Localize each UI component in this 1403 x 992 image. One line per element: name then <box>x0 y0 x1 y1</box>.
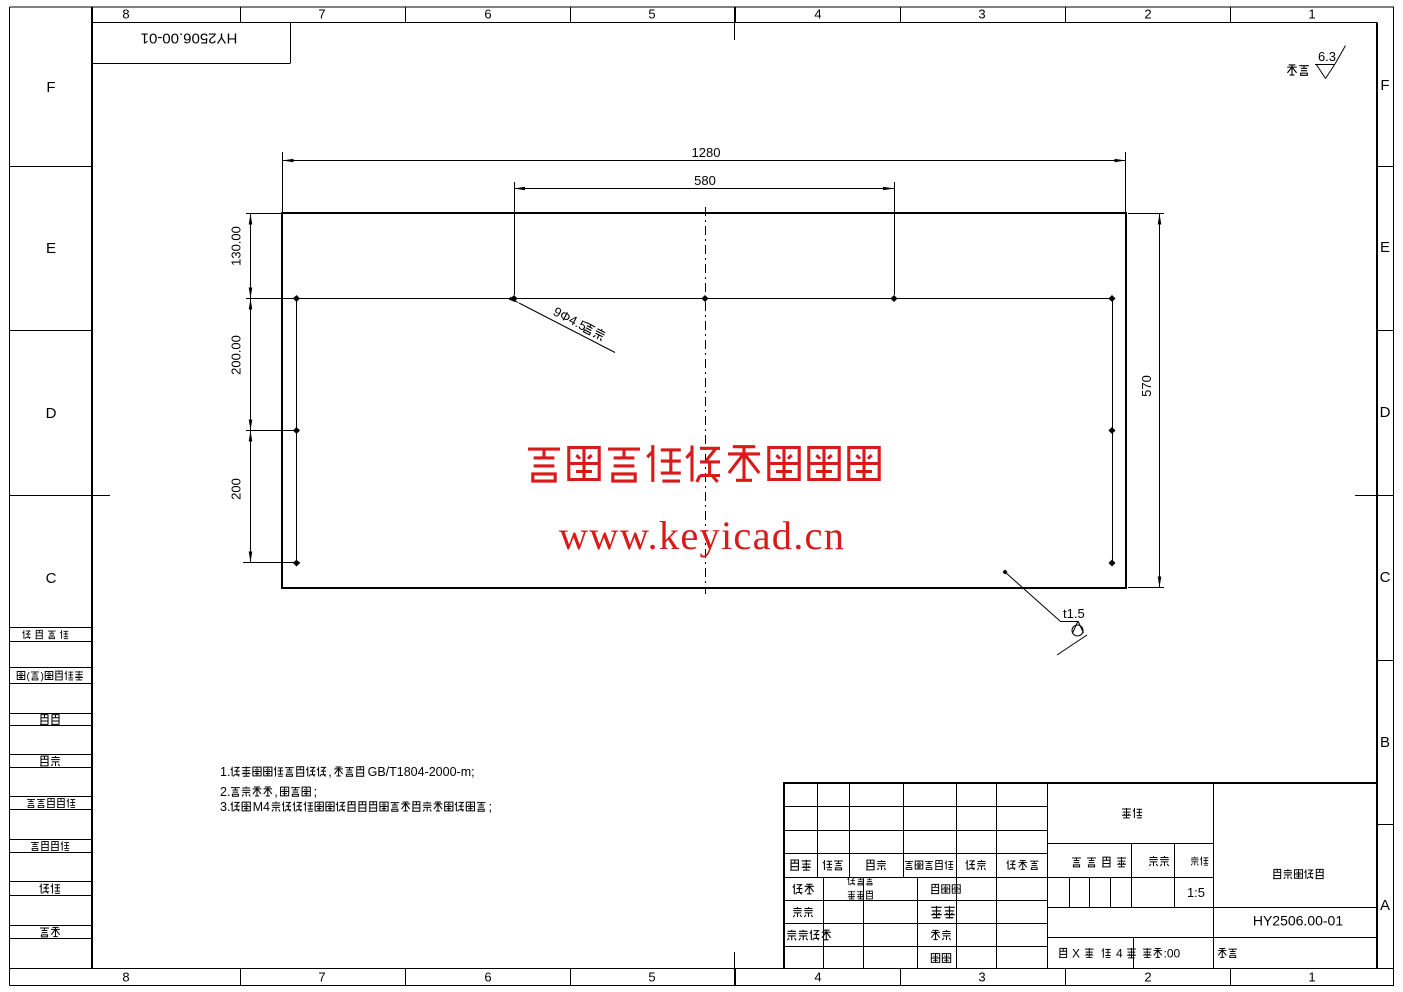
svg-text:A: A <box>1380 897 1390 914</box>
svg-text:7: 7 <box>318 970 325 985</box>
svg-text:;: ; <box>489 800 492 814</box>
svg-text:2.: 2. <box>220 785 230 799</box>
svg-text:200.00: 200.00 <box>229 335 244 375</box>
svg-text:570: 570 <box>1139 375 1154 397</box>
svg-text:www.keyicad.cn: www.keyicad.cn <box>559 513 845 558</box>
svg-text:GB/T1804-2000-m;: GB/T1804-2000-m; <box>368 765 475 779</box>
svg-text:3: 3 <box>978 970 985 985</box>
svg-text:8: 8 <box>122 7 129 22</box>
svg-text:4: 4 <box>814 970 821 985</box>
svg-text:6: 6 <box>484 7 491 22</box>
svg-text:1: 1 <box>1308 7 1315 22</box>
svg-text:HY2506.00-01: HY2506.00-01 <box>1253 913 1344 929</box>
svg-text:C: C <box>46 570 57 587</box>
svg-text:580: 580 <box>694 173 716 188</box>
svg-text:6.3: 6.3 <box>1318 49 1336 64</box>
svg-text:8: 8 <box>122 970 129 985</box>
svg-text:5: 5 <box>648 970 655 985</box>
svg-text:M4: M4 <box>253 800 270 814</box>
svg-text:3.: 3. <box>220 800 230 814</box>
svg-text:5: 5 <box>648 7 655 22</box>
svg-text:t1.5: t1.5 <box>1063 606 1085 621</box>
svg-text:1280: 1280 <box>692 145 721 160</box>
svg-text:130.00: 130.00 <box>229 226 244 266</box>
svg-text:F: F <box>1380 77 1389 94</box>
svg-text:HY2506.00-01: HY2506.00-01 <box>141 30 238 47</box>
svg-text:X: X <box>1072 947 1080 961</box>
svg-text:3: 3 <box>978 7 985 22</box>
svg-text:;: ; <box>314 785 317 799</box>
svg-text:1: 1 <box>1308 970 1315 985</box>
svg-text:,: , <box>328 765 331 779</box>
svg-text:2: 2 <box>1144 970 1151 985</box>
svg-text:D: D <box>1380 404 1391 421</box>
svg-text:7: 7 <box>318 7 325 22</box>
svg-text:4: 4 <box>1116 947 1123 961</box>
svg-text:D: D <box>46 405 57 422</box>
svg-text:6: 6 <box>484 970 491 985</box>
svg-text:F: F <box>46 79 55 96</box>
svg-text:E: E <box>46 240 56 257</box>
svg-text:1:5: 1:5 <box>1187 885 1205 900</box>
svg-text:): ) <box>41 672 44 683</box>
svg-text:2: 2 <box>1144 7 1151 22</box>
svg-text:4: 4 <box>814 7 821 22</box>
svg-text:1.: 1. <box>220 765 230 779</box>
svg-text:200: 200 <box>229 478 244 500</box>
svg-text:E: E <box>1380 239 1390 256</box>
svg-text:,: , <box>274 785 277 799</box>
svg-text:B: B <box>1380 734 1390 751</box>
svg-text:C: C <box>1380 569 1391 586</box>
svg-text::00: :00 <box>1164 947 1181 961</box>
